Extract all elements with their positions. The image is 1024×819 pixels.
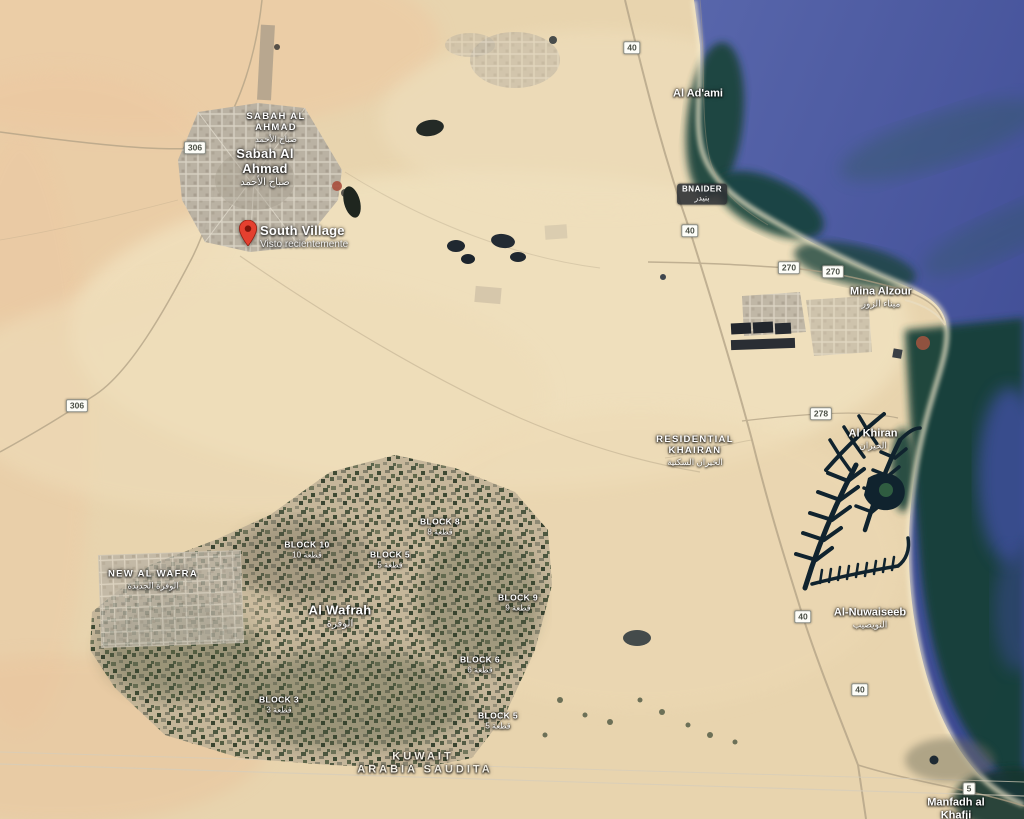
map-label-residential-khairan: RESIDENTIAL KHAIRANالخيران السكنية [652,435,738,467]
map-label-block-10: BLOCK 10قطعة 10 [284,540,329,559]
map-label-sabah-al-ahmad[interactable]: Sabah Al Ahmadصباح الأحمد [233,147,297,189]
map-label-mina-alzour[interactable]: Mina Alzourميناء الزور [850,285,912,308]
pin-label-title: South Village [260,223,348,238]
pin-label-subtitle: Visto recientemente [260,239,348,250]
map-label-block-9: BLOCK 9قطعة 9 [498,593,538,612]
road-shield-278: 278 [810,407,832,420]
map-label-new-al-wafra: NEW AL WAFRAالوفرة الجديدة [106,569,200,590]
map-label-al-wafrah[interactable]: Al Wafrahالوفرة [309,604,372,631]
map-label-manfadh-al-khafji[interactable]: Manfadh al Khafji [923,796,989,819]
road-shield-40: 40 [794,610,811,623]
map-label-block-6: BLOCK 6قطعة 6 [460,655,500,674]
road-shield-40: 40 [623,41,640,54]
road-shield-270: 270 [778,261,800,274]
map-label-block-3: BLOCK 3قطعة 3 [259,695,299,714]
satellite-map[interactable]: SABAH AL AHMADصباح الأحمدSabah Al Ahmadص… [0,0,1024,819]
map-label-block-5: BLOCK 5قطعة 5 [478,711,518,730]
road-shield-5: 5 [963,782,976,795]
road-shield-40: 40 [851,683,868,696]
map-label-al-ad-ami[interactable]: Al Ad'ami [673,88,723,101]
map-label-block-5: BLOCK 5قطعة 5 [370,550,410,569]
map-pin-icon [239,220,257,246]
map-label-sabah-al-ahmad: SABAH AL AHMADصباح الأحمد [240,112,312,144]
map-label-al-nuwaiseeb[interactable]: Al-Nuwaiseebالنويصيب [834,606,906,629]
road-shield-40: 40 [681,224,698,237]
pin-label[interactable]: South Village Visto recientemente [260,223,348,250]
map-label-block-8: BLOCK 8قطعة 8 [420,517,460,536]
map-label-kuwait: KUWAIT [392,751,453,764]
map-label-al-khiran[interactable]: Al Khiranالخيران [849,427,898,450]
map-label-arabia-saudita: ARABIA SAUDITA [357,764,493,777]
road-shield-306: 306 [184,141,206,154]
road-shield-306: 306 [66,399,88,412]
road-shield-270: 270 [822,265,844,278]
map-label-bnaider[interactable]: BNAIDERبنيدر [677,184,727,205]
labels-layer: SABAH AL AHMADصباح الأحمدSabah Al Ahmadص… [0,0,1024,819]
map-pin[interactable] [239,220,257,246]
